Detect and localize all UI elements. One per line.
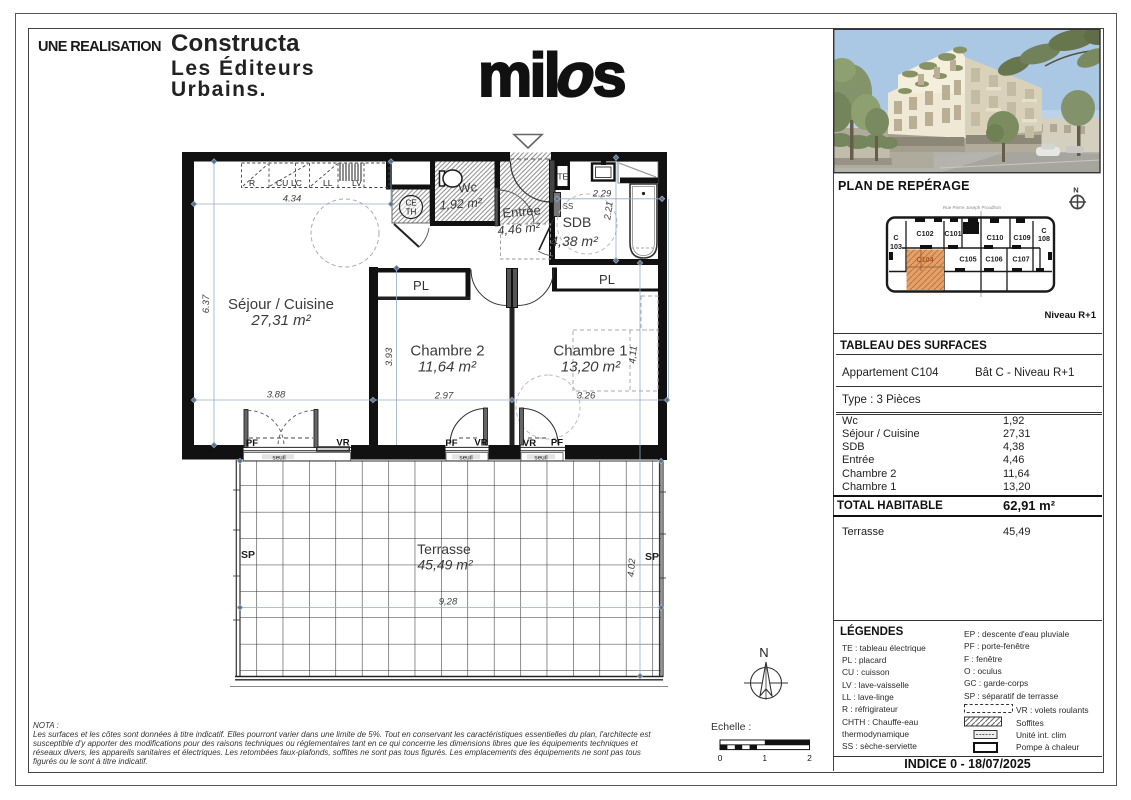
svg-text:2: 2 — [807, 753, 812, 763]
svg-text:2.21: 2.21 — [602, 201, 616, 222]
svg-text:Wc: Wc — [458, 179, 478, 195]
svg-text:PF: PF — [551, 437, 563, 448]
svg-text:CU: CU — [276, 178, 288, 188]
svg-text:45,49 m²: 45,49 m² — [417, 557, 474, 573]
svg-text:13,20 m²: 13,20 m² — [561, 359, 621, 376]
svg-text:PL: PL — [599, 272, 615, 287]
svg-text:2.97: 2.97 — [434, 391, 454, 402]
svg-text:VR: VR — [523, 438, 536, 449]
svg-text:2.29: 2.29 — [592, 189, 612, 200]
svg-text:C107: C107 — [1012, 255, 1029, 264]
svg-text:108: 108 — [1038, 234, 1050, 243]
svg-text:SDB: SDB — [563, 214, 592, 230]
svg-text:Chambre 1: Chambre 1 — [553, 343, 627, 360]
svg-text:1: 1 — [762, 753, 767, 763]
svg-text:Niveau R+1: Niveau R+1 — [1045, 310, 1097, 321]
svg-text:TH: TH — [406, 208, 417, 217]
svg-text:N: N — [759, 645, 768, 660]
svg-text:LV: LV — [352, 178, 362, 188]
svg-text:C101: C101 — [944, 229, 961, 238]
svg-text:3.88: 3.88 — [267, 390, 286, 401]
svg-text:27,31 m²: 27,31 m² — [250, 312, 311, 329]
svg-text:N: N — [1073, 186, 1078, 195]
svg-text:C109: C109 — [1013, 233, 1030, 242]
svg-text:4.34: 4.34 — [283, 194, 302, 205]
svg-text:11,64 m²: 11,64 m² — [418, 359, 477, 376]
svg-text:C104: C104 — [916, 255, 933, 264]
svg-text:Chambre 2: Chambre 2 — [410, 343, 484, 360]
svg-text:R: R — [249, 178, 255, 188]
svg-text:PL: PL — [413, 278, 429, 293]
svg-text:C: C — [893, 233, 898, 242]
svg-text:TE: TE — [557, 172, 568, 182]
svg-text:VR: VR — [336, 437, 349, 448]
svg-text:4,46 m²: 4,46 m² — [497, 220, 541, 238]
svg-text:C105: C105 — [959, 255, 976, 264]
svg-text:CE: CE — [405, 199, 416, 208]
svg-text:SS: SS — [563, 202, 574, 211]
svg-text:VR: VR — [474, 437, 487, 448]
svg-text:Rue Pierre Joseph Proudhon: Rue Pierre Joseph Proudhon — [943, 205, 1002, 210]
svg-text:Séjour / Cuisine: Séjour / Cuisine — [228, 296, 334, 313]
svg-text:Terrasse: Terrasse — [417, 541, 471, 557]
svg-text:4.02: 4.02 — [626, 557, 639, 577]
svg-text:3.26: 3.26 — [577, 391, 596, 402]
svg-text:LC: LC — [291, 178, 302, 188]
svg-text:SP: SP — [241, 549, 255, 561]
svg-text:4,11: 4,11 — [627, 345, 640, 364]
svg-text:C106: C106 — [985, 255, 1002, 264]
svg-text:PF: PF — [445, 438, 457, 449]
svg-text:9,28: 9,28 — [439, 597, 458, 608]
svg-text:LL: LL — [323, 178, 333, 188]
svg-text:4,38 m²: 4,38 m² — [550, 233, 599, 249]
svg-text:C102: C102 — [916, 229, 933, 238]
svg-text:PF: PF — [246, 438, 258, 449]
svg-text:C110: C110 — [987, 233, 1004, 242]
svg-text:103: 103 — [890, 242, 902, 251]
svg-text:3.93: 3.93 — [384, 347, 395, 366]
svg-text:6.37: 6.37 — [201, 294, 212, 313]
svg-text:SP: SP — [645, 551, 659, 563]
